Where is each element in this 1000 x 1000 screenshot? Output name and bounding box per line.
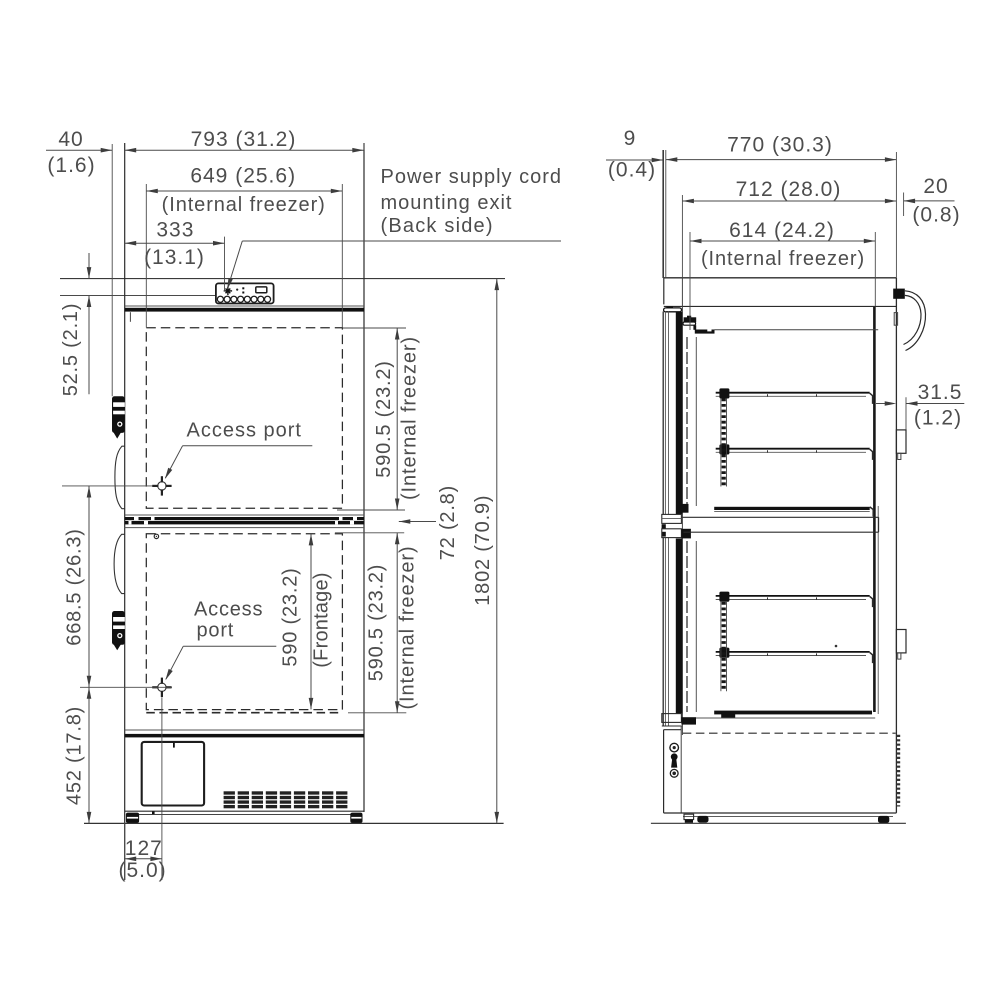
svg-text:(0.8): (0.8) — [912, 204, 960, 227]
svg-text:40: 40 — [58, 128, 83, 151]
svg-text:649 (25.6): 649 (25.6) — [190, 165, 296, 188]
svg-text:Access: Access — [194, 599, 263, 621]
svg-text:mounting exit: mounting exit — [381, 192, 513, 214]
svg-text:590 (23.2): 590 (23.2) — [280, 567, 302, 666]
svg-text:(Frontage): (Frontage) — [311, 572, 333, 667]
svg-text:port: port — [197, 620, 235, 642]
svg-text:72 (2.8): 72 (2.8) — [437, 485, 459, 560]
svg-text:(1.2): (1.2) — [914, 407, 962, 430]
svg-text:1802 (70.9): 1802 (70.9) — [472, 495, 494, 606]
svg-text:(Internal freezer): (Internal freezer) — [701, 248, 865, 270]
svg-text:Power supply cord: Power supply cord — [381, 166, 563, 188]
svg-text:9: 9 — [624, 127, 637, 150]
svg-text:793 (31.2): 793 (31.2) — [191, 128, 297, 151]
svg-text:(1.6): (1.6) — [47, 154, 95, 177]
svg-text:770 (30.3): 770 (30.3) — [727, 134, 833, 157]
svg-text:712 (28.0): 712 (28.0) — [736, 178, 842, 201]
svg-text:668.5 (26.3): 668.5 (26.3) — [63, 528, 85, 645]
svg-text:(Internal freezer): (Internal freezer) — [162, 194, 326, 216]
svg-text:20: 20 — [923, 175, 948, 198]
svg-text:(0.4): (0.4) — [608, 159, 656, 182]
svg-text:(Back side): (Back side) — [381, 215, 494, 237]
svg-text:590.5 (23.2): 590.5 (23.2) — [373, 360, 395, 477]
svg-text:590.5 (23.2): 590.5 (23.2) — [366, 564, 388, 681]
svg-text:(Internal freezer): (Internal freezer) — [398, 336, 420, 500]
svg-text:(5.0): (5.0) — [119, 859, 167, 882]
svg-text:52.5 (2.1): 52.5 (2.1) — [60, 303, 82, 397]
svg-text:(Internal freezer): (Internal freezer) — [397, 545, 419, 709]
svg-text:31.5: 31.5 — [918, 381, 963, 404]
svg-text:(13.1): (13.1) — [144, 246, 205, 269]
svg-text:Access port: Access port — [187, 420, 302, 442]
svg-text:452 (17.8): 452 (17.8) — [64, 706, 86, 805]
svg-text:614 (24.2): 614 (24.2) — [729, 219, 835, 242]
svg-text:127: 127 — [125, 837, 163, 860]
svg-text:333: 333 — [156, 219, 194, 242]
